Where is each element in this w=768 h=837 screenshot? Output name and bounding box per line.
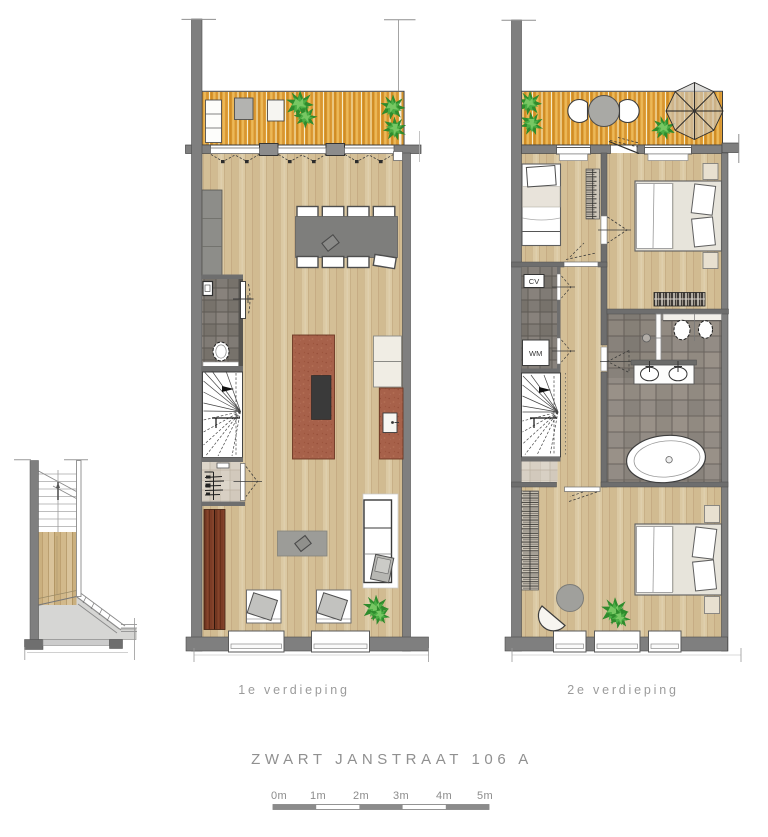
svg-text:WM: WM — [529, 349, 542, 358]
svg-text:ZWART JANSTRAAT 106 A: ZWART JANSTRAAT 106 A — [251, 751, 533, 768]
svg-text:4m: 4m — [436, 790, 452, 802]
svg-text:CV: CV — [529, 277, 539, 286]
svg-text:1m: 1m — [310, 790, 326, 802]
svg-text:2m: 2m — [353, 790, 369, 802]
svg-text:3m: 3m — [393, 790, 409, 802]
svg-text:0m: 0m — [271, 790, 287, 802]
svg-text:1e verdieping: 1e verdieping — [238, 683, 349, 697]
svg-text:2e verdieping: 2e verdieping — [567, 683, 678, 697]
svg-text:5m: 5m — [477, 790, 493, 802]
